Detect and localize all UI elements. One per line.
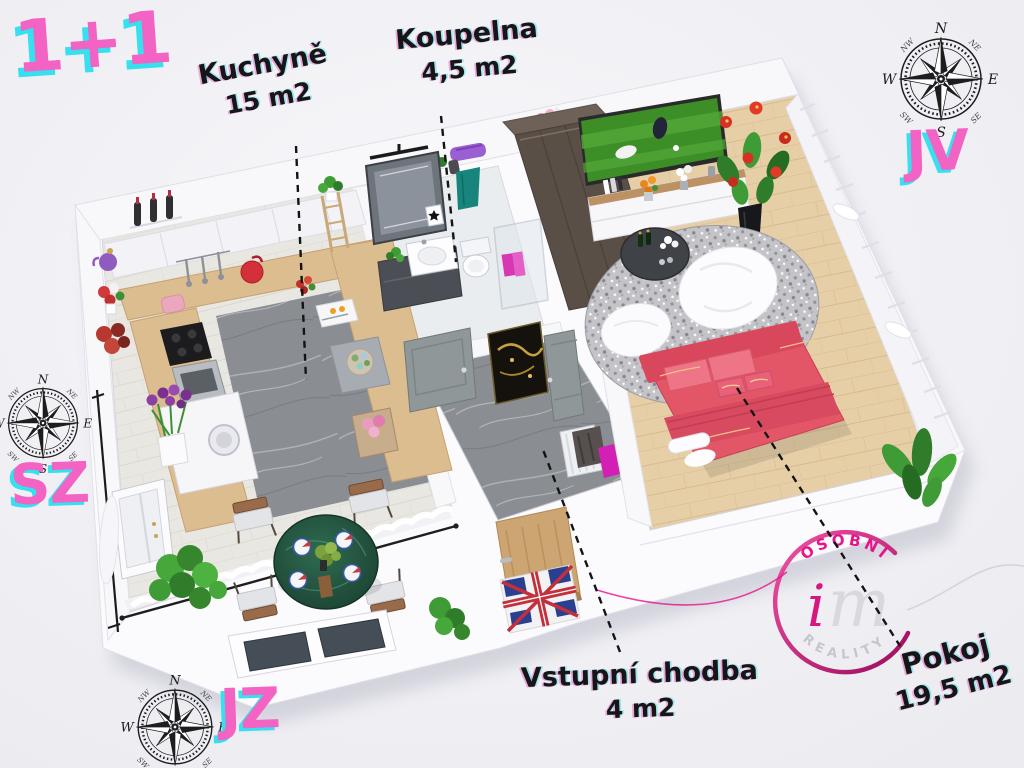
star-card — [426, 205, 444, 226]
logo-script: im — [807, 565, 890, 642]
gold-picture-frame — [488, 322, 548, 404]
place-setting — [336, 532, 354, 549]
place-setting — [290, 572, 308, 589]
plan-title: 1+1 — [12, 1, 174, 84]
soccer-ball — [673, 145, 679, 151]
place-setting — [294, 539, 312, 556]
orientation-sz: SZ — [9, 456, 90, 515]
hallway-label-name: Vstupní chodba — [519, 656, 760, 695]
compass-w: W — [882, 72, 898, 88]
svg-text:N: N — [168, 674, 181, 689]
floor-plan-page: N E S W NE SE SW NW N E S W NE SE SW NW … — [0, 0, 1024, 768]
orientation-jz: JZ — [219, 681, 280, 739]
compass-e: E — [987, 72, 998, 88]
towel-basket — [352, 408, 398, 458]
compass-n: N — [934, 21, 948, 37]
place-setting — [344, 565, 362, 582]
entrance — [496, 507, 582, 633]
hallway-label: Vstupní chodba 4 m2 — [519, 656, 761, 728]
svg-text:E: E — [82, 416, 92, 430]
pink-bath-towels — [502, 251, 526, 276]
bathroom-door — [404, 328, 476, 412]
floor-plan-render: N E S W NE SE SW NW N E S W NE SE SW NW … — [0, 0, 1024, 768]
orientation-jv: JV — [905, 123, 969, 181]
svg-text:W: W — [121, 721, 136, 736]
svg-text:N: N — [37, 372, 49, 386]
